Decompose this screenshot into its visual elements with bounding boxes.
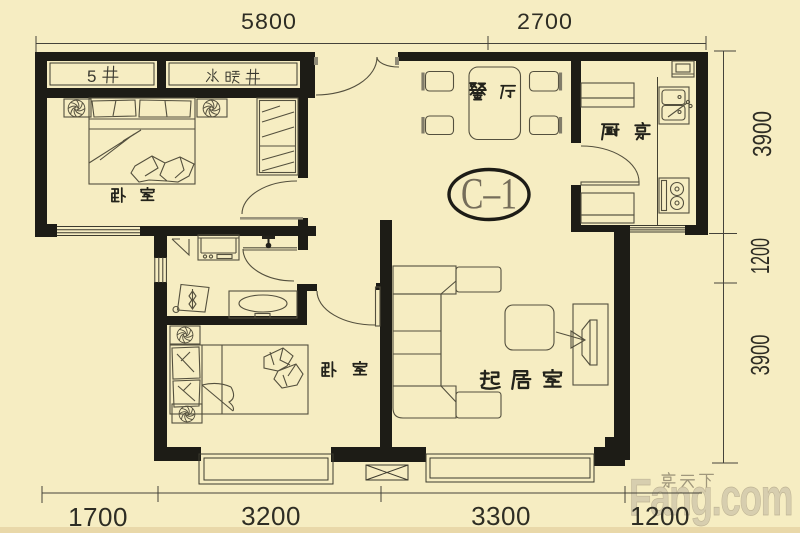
svg-text:5800: 5800 bbox=[241, 9, 297, 34]
svg-text:3900: 3900 bbox=[745, 335, 775, 376]
svg-text:3200: 3200 bbox=[241, 501, 301, 531]
svg-text:1200: 1200 bbox=[630, 501, 690, 531]
svg-text:2700: 2700 bbox=[517, 9, 573, 34]
svg-text:1200: 1200 bbox=[745, 238, 775, 274]
svg-text:3300: 3300 bbox=[471, 501, 531, 531]
svg-text:3900: 3900 bbox=[747, 111, 777, 157]
svg-text:C–1: C–1 bbox=[461, 169, 517, 218]
svg-text:1700: 1700 bbox=[68, 502, 128, 532]
svg-text:5: 5 bbox=[87, 67, 96, 86]
